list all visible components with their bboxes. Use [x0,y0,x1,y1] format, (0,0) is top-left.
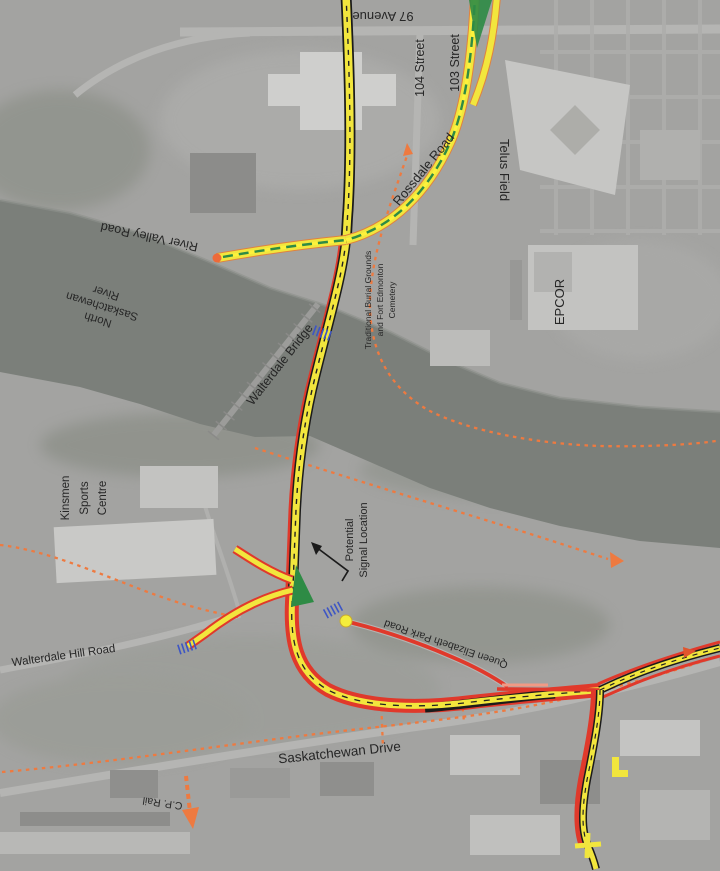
svg-text:Cemetery: Cemetery [387,281,397,319]
aerial-base [0,0,720,871]
label-kinsmen-sports-centre: Kinsmen Sports Centre [60,476,109,521]
svg-text:Signal Location: Signal Location [358,502,370,577]
aerial-map: 97 Avenue 104 Street 103 Street Rossdale… [0,0,720,871]
label-97-avenue: 97 Avenue [352,9,413,24]
label-epcor: EPCOR [552,279,567,325]
road-end-dot-orange [213,254,222,263]
svg-text:Traditional Burial Grounds: Traditional Burial Grounds [363,251,373,349]
svg-text:Potential: Potential [344,519,356,562]
svg-text:and Fort Edmonton: and Fort Edmonton [375,263,385,336]
svg-text:Sports: Sports [79,481,91,514]
map-canvas: 97 Avenue 104 Street 103 Street Rossdale… [0,0,720,871]
signal-location-dot [340,615,352,627]
svg-text:Kinsmen: Kinsmen [60,476,72,521]
label-104-street: 104 Street [413,39,427,97]
proposed-road-north [346,0,350,240]
svg-text:Centre: Centre [97,481,109,516]
label-telus-field: Telus Field [497,139,512,201]
label-103-street: 103 Street [448,34,462,92]
